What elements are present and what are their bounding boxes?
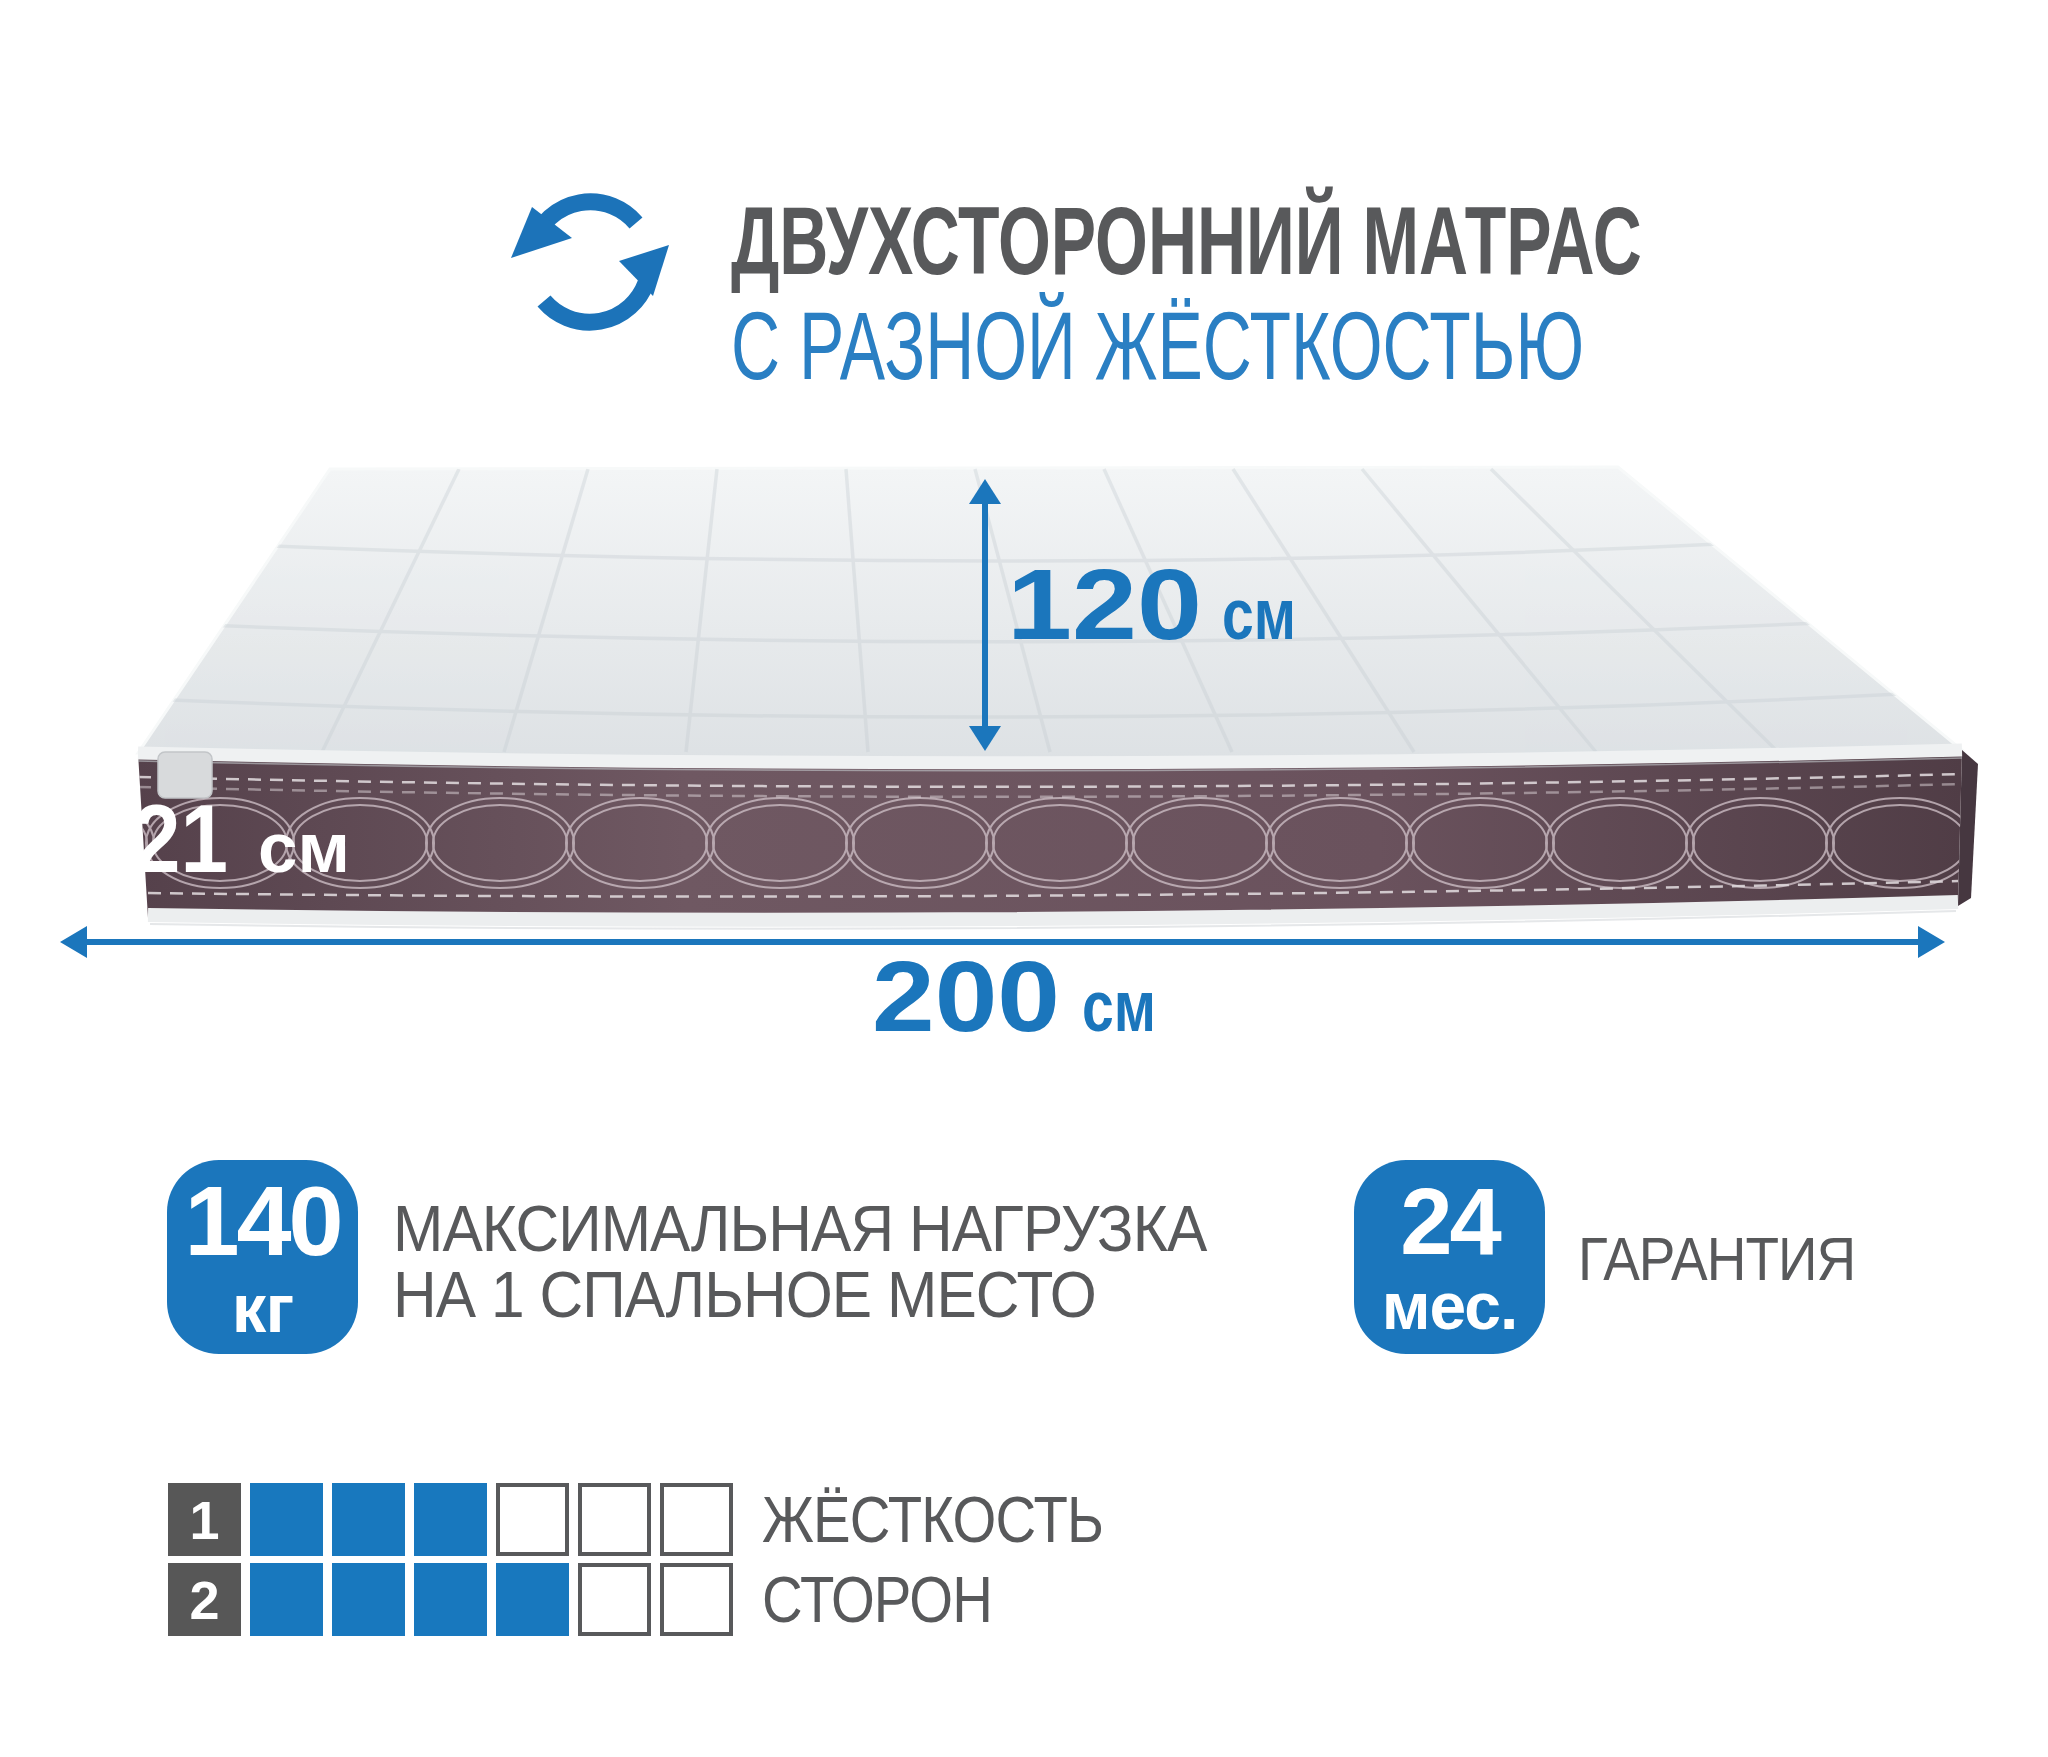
- firmness-label-line2: СТОРОН: [762, 1563, 992, 1636]
- page-title: ДВУХСТОРОННИЙ МАТРАС: [731, 192, 1642, 291]
- firmness-cell-filled: [332, 1483, 405, 1556]
- length-value: 200: [872, 940, 1060, 1052]
- max-load-label-line2: НА 1 СПАЛЬНОЕ МЕСТО: [393, 1262, 1206, 1328]
- mattress-infographic: ДВУХСТОРОННИЙ МАТРАС С РАЗНОЙ ЖЁСТКОСТЬЮ: [0, 0, 2048, 1757]
- rotate-arc-bottom: [544, 283, 646, 322]
- firmness-cell-empty: [578, 1483, 651, 1556]
- max-load-unit: кг: [232, 1274, 293, 1343]
- page-subtitle: С РАЗНОЙ ЖЁСТКОСТЬЮ: [731, 297, 1584, 396]
- firmness-side-number: 1: [168, 1483, 241, 1556]
- firmness-cell-empty: [660, 1563, 733, 1636]
- depth-unit: см: [1222, 574, 1296, 654]
- thickness-value: 21: [133, 785, 228, 892]
- firmness-cell-empty: [496, 1483, 569, 1556]
- band-stitching: [130, 770, 1970, 920]
- firmness-cell-filled: [496, 1563, 569, 1636]
- firmness-cell-filled: [250, 1563, 323, 1636]
- firmness-cell-filled: [414, 1563, 487, 1636]
- warranty-badge: 24 мес.: [1354, 1160, 1545, 1354]
- warranty-value: 24: [1400, 1175, 1499, 1269]
- thickness-unit: см: [258, 809, 350, 887]
- rotate-arrows-icon: [508, 180, 672, 344]
- max-load-badge: 140 кг: [167, 1160, 358, 1354]
- thickness-arrow: [83, 758, 117, 916]
- firmness-side-number: 2: [168, 1563, 241, 1636]
- firmness-cell-filled: [250, 1483, 323, 1556]
- firmness-label-line1: ЖЁСТКОСТЬ: [762, 1483, 1103, 1556]
- firmness-row-side1: 1: [168, 1483, 733, 1556]
- length-unit: см: [1082, 966, 1156, 1046]
- firmness-row-side2: 2: [168, 1563, 733, 1636]
- mattress-illustration: 21 см 120 см 200 см: [0, 430, 2048, 1090]
- firmness-cell-empty: [660, 1483, 733, 1556]
- firmness-cell-empty: [578, 1563, 651, 1636]
- depth-value: 120: [1007, 548, 1202, 660]
- firmness-cell-filled: [332, 1563, 405, 1636]
- warranty-label: ГАРАНТИЯ: [1578, 1226, 1855, 1292]
- max-load-label: МАКСИМАЛЬНАЯ НАГРУЗКА НА 1 СПАЛЬНОЕ МЕСТ…: [393, 1196, 1206, 1328]
- max-load-label-line1: МАКСИМАЛЬНАЯ НАГРУЗКА: [393, 1196, 1206, 1262]
- firmness-cell-filled: [414, 1483, 487, 1556]
- warranty-unit: мес.: [1382, 1273, 1518, 1339]
- max-load-value: 140: [184, 1171, 340, 1270]
